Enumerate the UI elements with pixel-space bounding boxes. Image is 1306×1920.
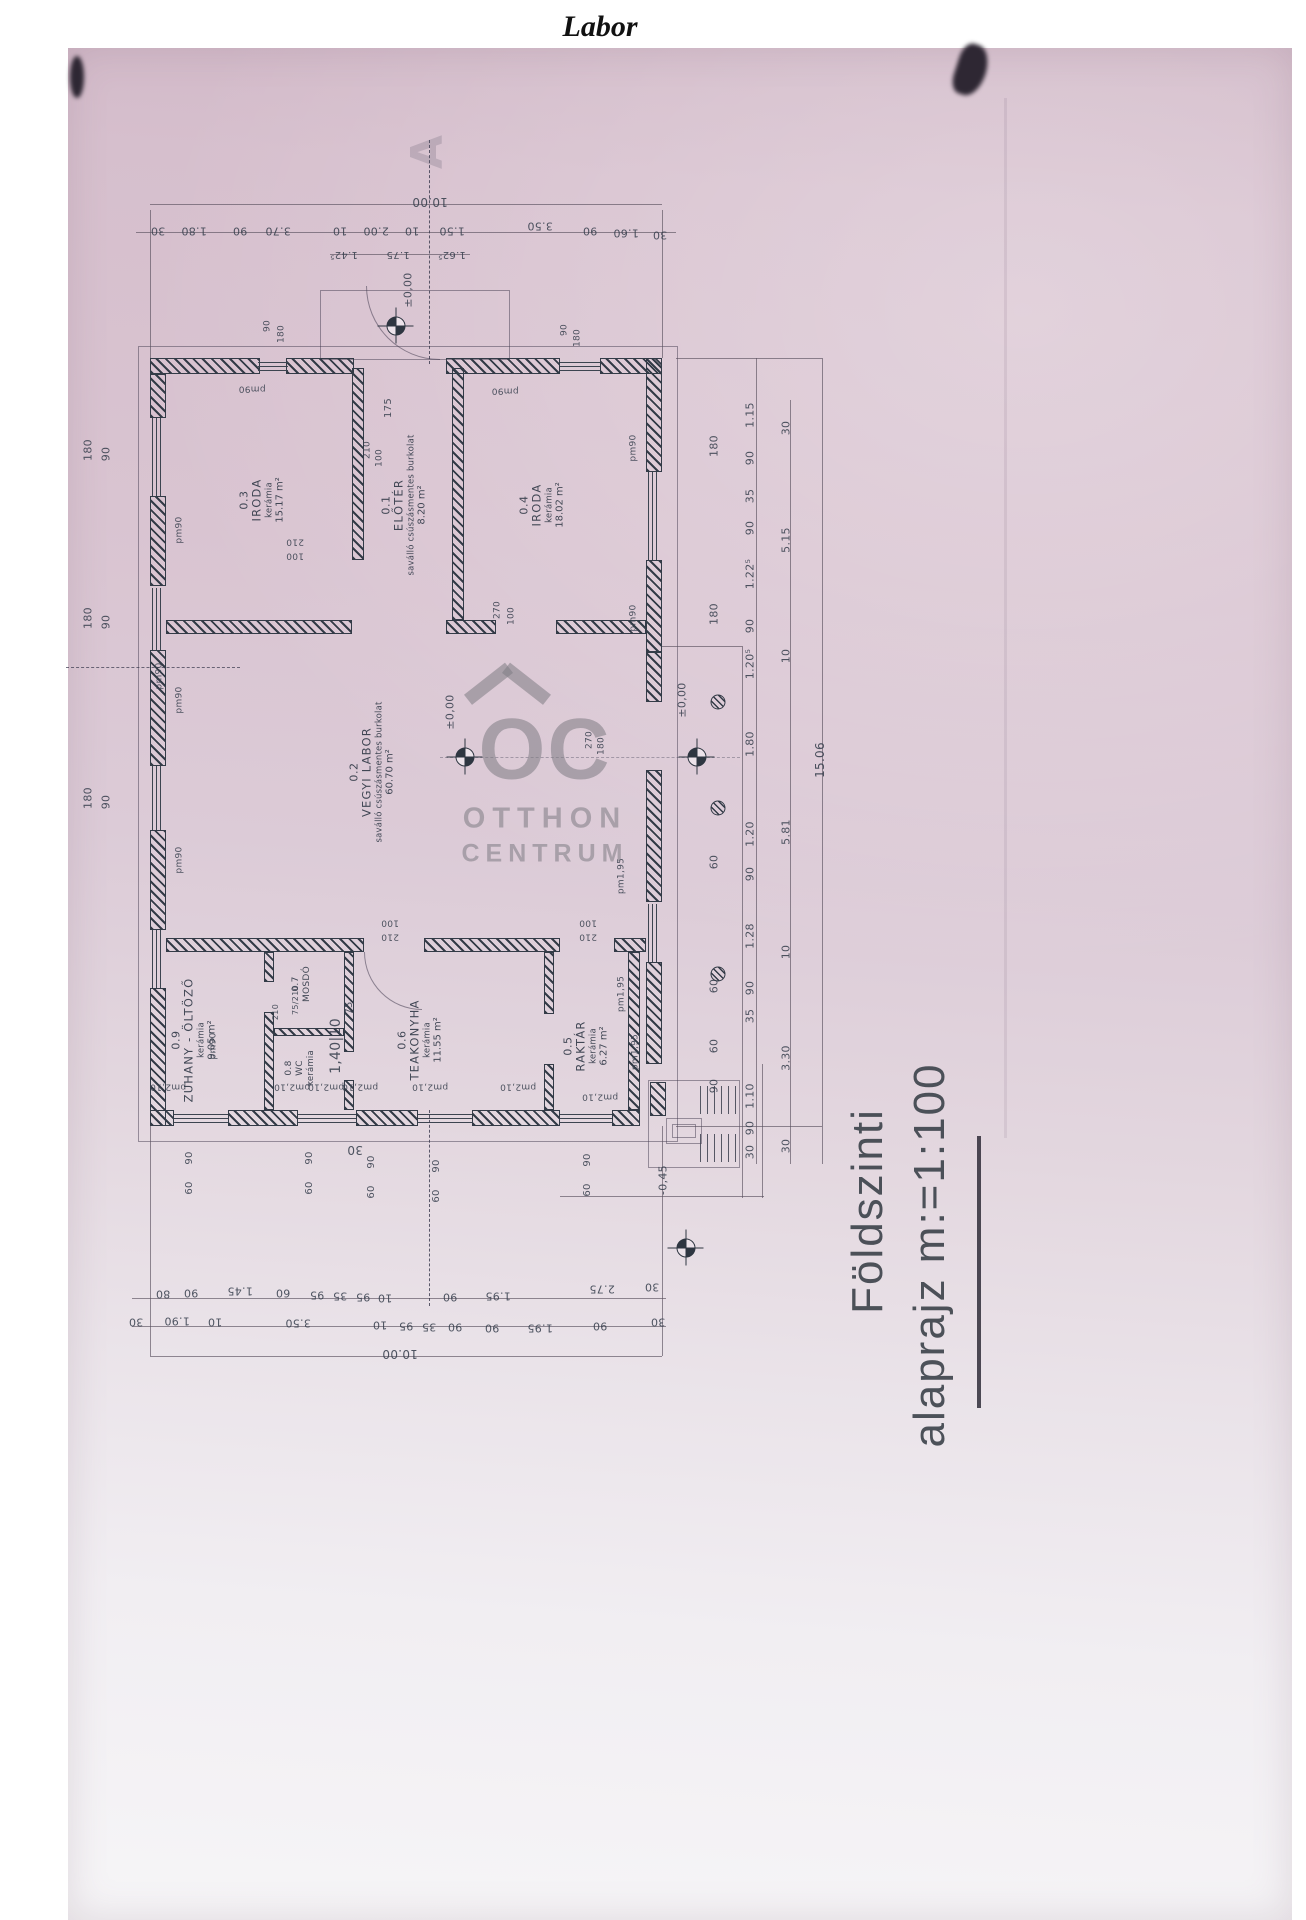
datum-marker-icon (688, 748, 707, 767)
datum-marker-icon (387, 317, 406, 336)
column-icon (711, 967, 726, 982)
watermark-line2: CENTRUM (462, 840, 629, 869)
floor-plan: 0.3IRODAkerámia15.17 m²0.1ELŐTÉRsaválló … (0, 0, 1306, 1920)
column-icon (711, 801, 726, 816)
caption-line2: alaprajz m:=1:100 (905, 1063, 955, 1448)
datum-marker-icon (677, 1239, 696, 1258)
column-icon (711, 695, 726, 710)
watermark-line1: OTTHON (462, 803, 629, 836)
symbols-layer (0, 0, 1306, 1920)
scanned-floor-plan-page: Labor (0, 0, 1306, 1920)
watermark-monogram: OC (479, 711, 612, 788)
otthon-centrum-watermark: OC OTTHON CENTRUM (462, 711, 629, 868)
caption-line1: Földszinti (843, 1108, 893, 1314)
